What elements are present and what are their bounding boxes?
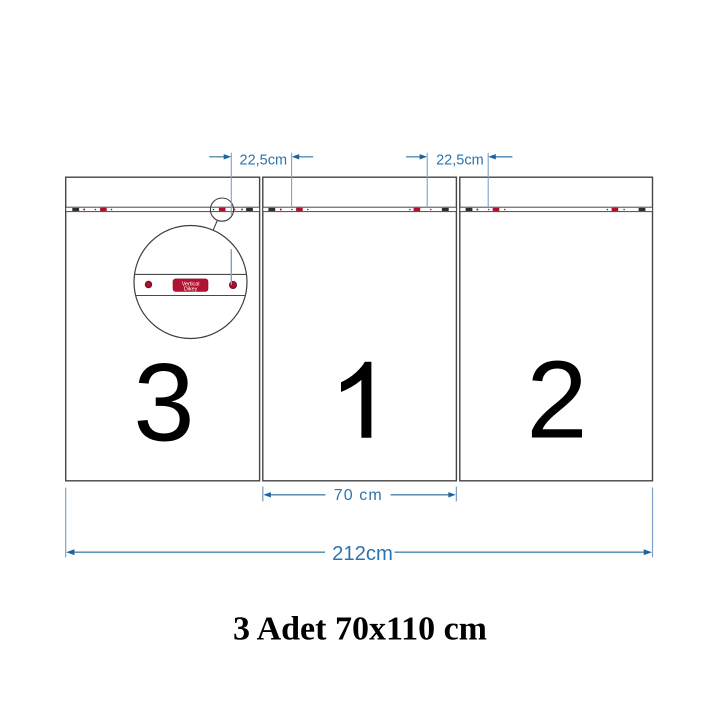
svg-text:22,5cm: 22,5cm — [240, 153, 288, 169]
svg-text:22,5cm: 22,5cm — [436, 153, 484, 169]
svg-text:3 Adet 70x110 cm: 3 Adet 70x110 cm — [233, 611, 487, 648]
svg-text:2: 2 — [526, 339, 587, 462]
svg-text:70 cm: 70 cm — [334, 487, 383, 504]
svg-text:3: 3 — [133, 342, 194, 465]
svg-text:Dikey: Dikey — [184, 287, 198, 293]
svg-text:212cm: 212cm — [332, 543, 393, 565]
